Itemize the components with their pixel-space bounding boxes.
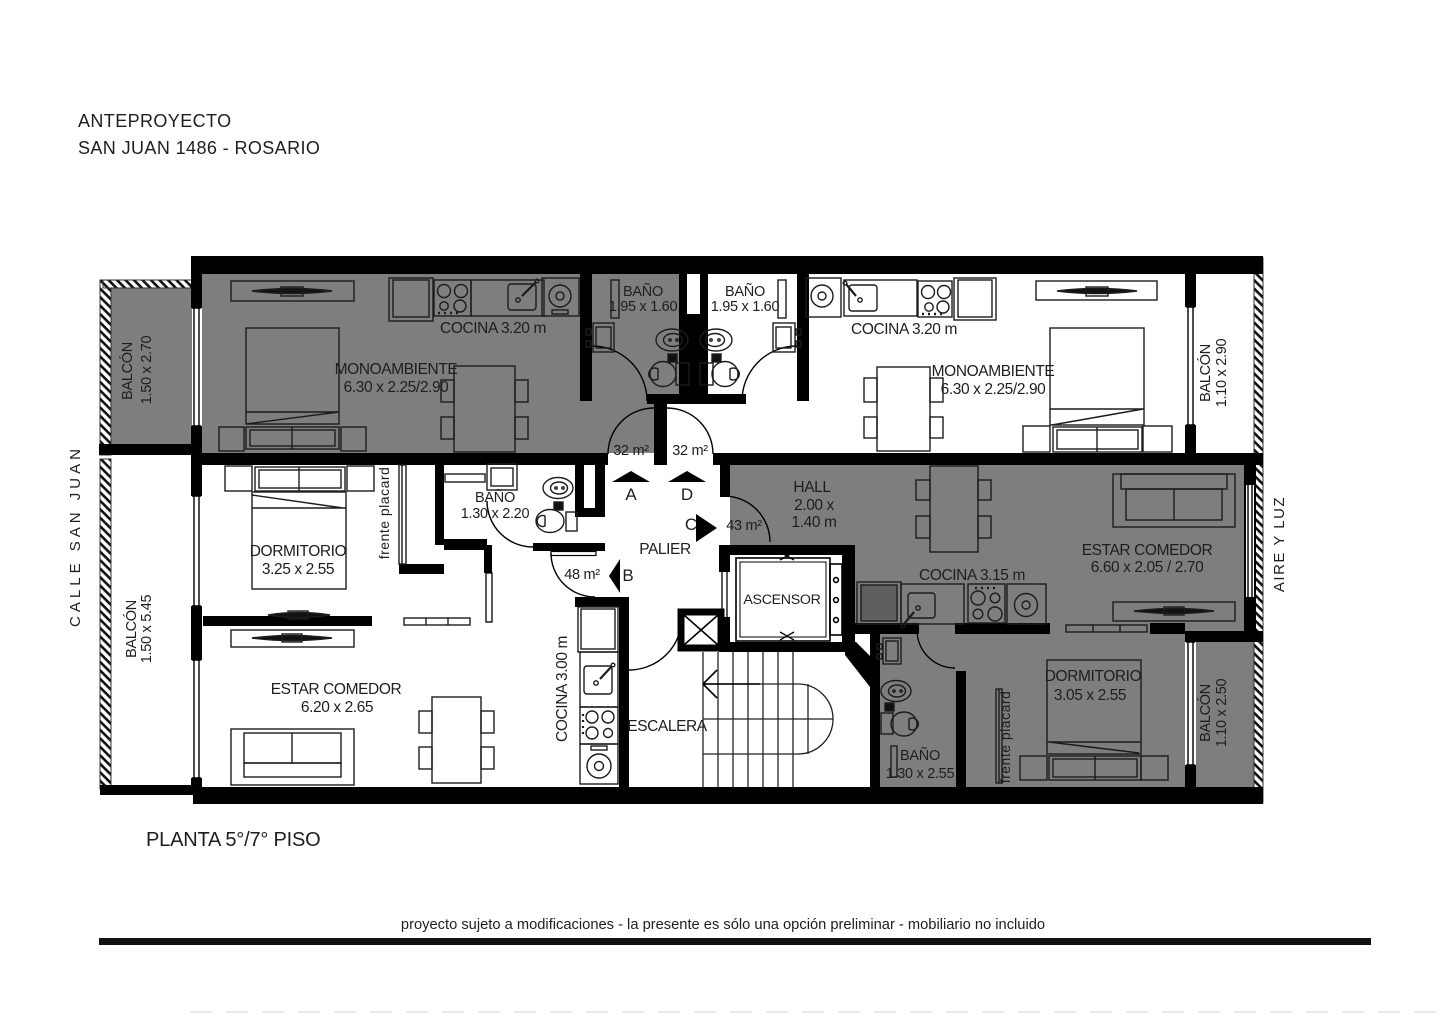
- svg-text:frente placard: frente placard: [376, 467, 392, 560]
- svg-text:6.20 x 2.65: 6.20 x 2.65: [301, 699, 373, 716]
- svg-text:1.50 x 5.45: 1.50 x 5.45: [139, 595, 155, 664]
- svg-text:6.30 x 2.25/2.90: 6.30 x 2.25/2.90: [344, 379, 450, 396]
- svg-text:48 m²: 48 m²: [564, 567, 600, 583]
- svg-text:BAÑO: BAÑO: [900, 747, 940, 764]
- svg-text:ESCALERA: ESCALERA: [627, 718, 708, 735]
- svg-text:HALL: HALL: [793, 479, 831, 496]
- svg-text:32 m²: 32 m²: [672, 443, 708, 459]
- svg-text:43 m²: 43 m²: [726, 518, 762, 534]
- svg-text:COCINA 3.15 m: COCINA 3.15 m: [919, 567, 1025, 584]
- svg-text:6.30 x 2.25/2.90: 6.30 x 2.25/2.90: [941, 381, 1047, 398]
- svg-text:MONOAMBIENTE: MONOAMBIENTE: [335, 361, 458, 378]
- svg-text:1.40 m: 1.40 m: [792, 514, 837, 531]
- svg-text:2.00 x: 2.00 x: [794, 497, 834, 514]
- svg-text:COCINA 3.00 m: COCINA 3.00 m: [554, 636, 571, 742]
- svg-text:1.30 x 2.20: 1.30 x 2.20: [461, 506, 530, 522]
- svg-text:BAÑO: BAÑO: [725, 283, 765, 300]
- svg-text:BALCÓN: BALCÓN: [1197, 684, 1214, 742]
- svg-text:ESTAR COMEDOR: ESTAR COMEDOR: [1082, 542, 1213, 559]
- svg-text:PLANTA 5°/7° PISO: PLANTA 5°/7° PISO: [146, 829, 321, 851]
- svg-text:MONOAMBIENTE: MONOAMBIENTE: [932, 363, 1055, 380]
- svg-text:ANTEPROYECTO: ANTEPROYECTO: [78, 111, 232, 131]
- svg-text:DORMITORIO: DORMITORIO: [1045, 668, 1142, 685]
- svg-text:proyecto sujeto a modificacion: proyecto sujeto a modificaciones - la pr…: [401, 917, 1045, 933]
- svg-text:1.10 x 2.90: 1.10 x 2.90: [1214, 339, 1230, 408]
- svg-text:DORMITORIO: DORMITORIO: [250, 543, 347, 560]
- svg-text:PALIER: PALIER: [639, 541, 691, 558]
- svg-text:6.60 x 2.05 / 2.70: 6.60 x 2.05 / 2.70: [1091, 559, 1204, 576]
- svg-text:BALCÓN: BALCÓN: [1197, 344, 1214, 402]
- svg-text:BAÑO: BAÑO: [475, 489, 515, 506]
- svg-text:ESTAR COMEDOR: ESTAR COMEDOR: [271, 681, 402, 698]
- svg-text:3.05 x 2.55: 3.05 x 2.55: [1054, 687, 1126, 704]
- svg-text:COCINA 3.20 m: COCINA 3.20 m: [851, 321, 957, 338]
- svg-text:BALCÓN: BALCÓN: [123, 600, 140, 658]
- svg-text:SAN JUAN 1486 - ROSARIO: SAN JUAN 1486 - ROSARIO: [78, 138, 320, 158]
- svg-text:CALLE SAN JUAN: CALLE SAN JUAN: [67, 445, 84, 627]
- svg-text:COCINA 3.20 m: COCINA 3.20 m: [440, 320, 546, 337]
- svg-text:3.25 x 2.55: 3.25 x 2.55: [262, 561, 334, 578]
- svg-text:D: D: [681, 485, 693, 504]
- svg-text:C: C: [685, 515, 697, 534]
- svg-text:BALCÓN: BALCÓN: [119, 342, 136, 400]
- svg-text:ASCENSOR: ASCENSOR: [743, 592, 820, 608]
- svg-text:1.30 x 2.55: 1.30 x 2.55: [886, 766, 955, 782]
- svg-text:B: B: [622, 566, 633, 585]
- svg-text:1.95 x 1.60: 1.95 x 1.60: [609, 299, 678, 315]
- svg-text:AIRE Y LUZ: AIRE Y LUZ: [1271, 496, 1288, 592]
- svg-text:BAÑO: BAÑO: [623, 283, 663, 300]
- svg-text:A: A: [625, 485, 637, 504]
- svg-text:1.50 x 2.70: 1.50 x 2.70: [139, 336, 155, 405]
- svg-text:1.95 x 1.60: 1.95 x 1.60: [711, 299, 780, 315]
- svg-text:32 m²: 32 m²: [613, 443, 649, 459]
- svg-text:frente placard: frente placard: [997, 691, 1013, 784]
- svg-text:1.10 x 2.50: 1.10 x 2.50: [1214, 679, 1230, 748]
